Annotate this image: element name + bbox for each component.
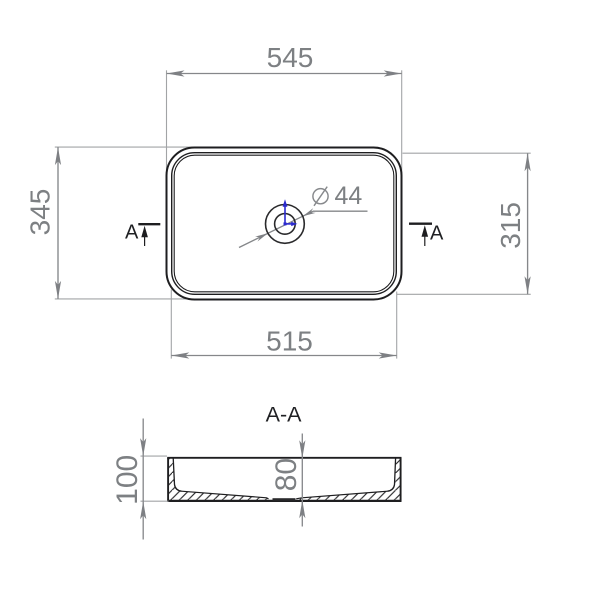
svg-text:44: 44 xyxy=(335,182,363,210)
svg-text:80: 80 xyxy=(270,458,303,491)
svg-text:A: A xyxy=(430,222,444,244)
svg-text:545: 545 xyxy=(267,42,314,73)
svg-text:345: 345 xyxy=(24,189,55,236)
svg-text:A: A xyxy=(125,222,139,244)
svg-text:100: 100 xyxy=(111,455,144,505)
svg-text:515: 515 xyxy=(266,326,313,357)
svg-text:315: 315 xyxy=(495,202,526,249)
svg-text:A-A: A-A xyxy=(266,402,303,426)
